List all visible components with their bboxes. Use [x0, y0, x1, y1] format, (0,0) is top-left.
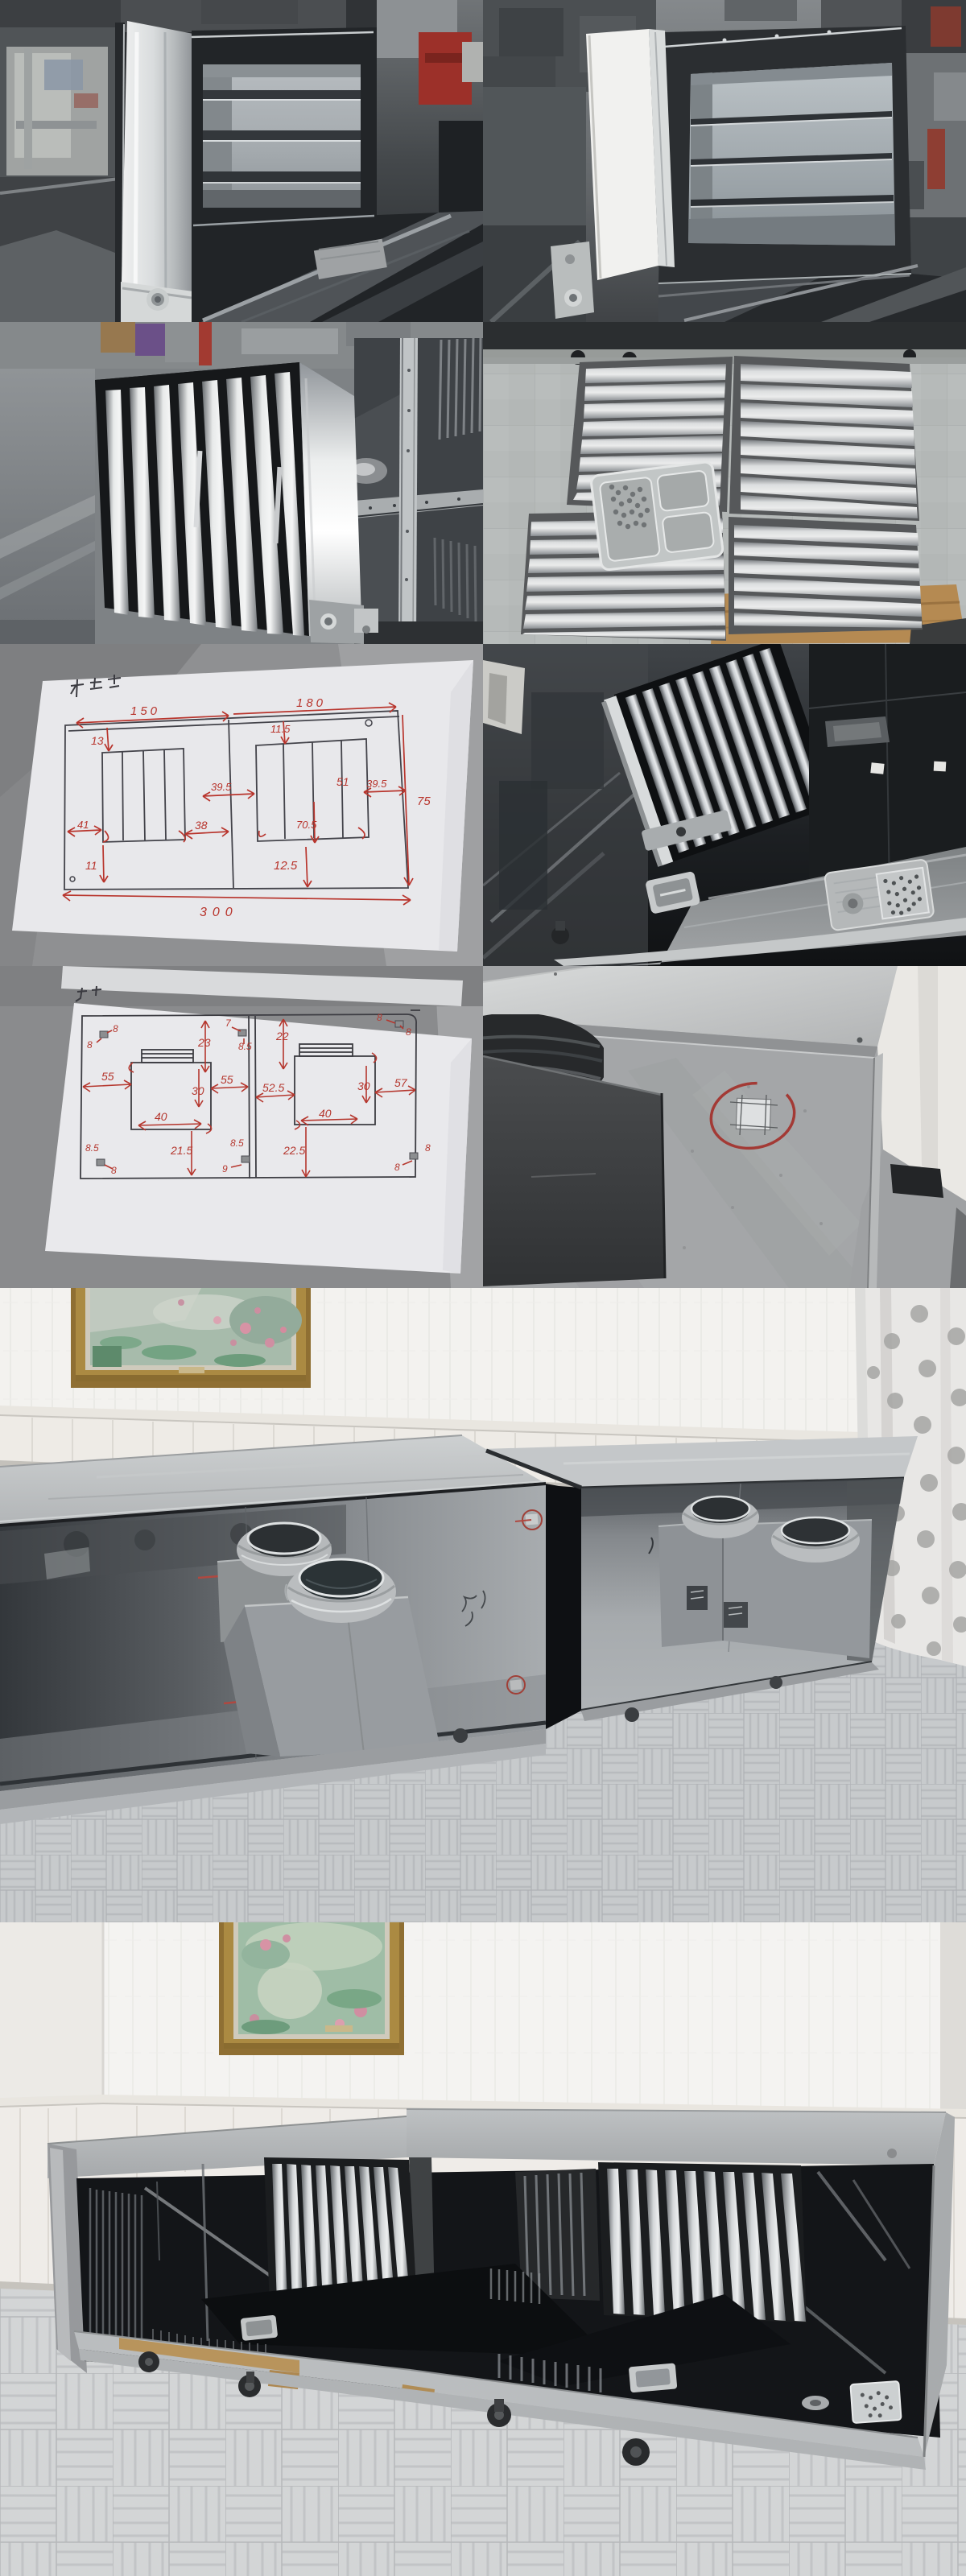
svg-text:9: 9 — [222, 1163, 228, 1174]
svg-text:8: 8 — [406, 1026, 411, 1038]
svg-text:8: 8 — [425, 1142, 431, 1154]
svg-text:180: 180 — [296, 696, 326, 710]
svg-text:11.5: 11.5 — [270, 723, 291, 735]
svg-text:30: 30 — [192, 1084, 204, 1097]
svg-text:13: 13 — [91, 734, 104, 747]
svg-text:8: 8 — [377, 1012, 382, 1023]
svg-text:55: 55 — [221, 1073, 233, 1086]
svg-text:39.5: 39.5 — [211, 781, 232, 793]
svg-text:150: 150 — [130, 704, 160, 718]
svg-text:55: 55 — [101, 1070, 114, 1083]
svg-text:40: 40 — [155, 1110, 167, 1123]
svg-text:300: 300 — [200, 906, 238, 919]
svg-text:23: 23 — [197, 1036, 211, 1049]
svg-text:8: 8 — [394, 1162, 400, 1173]
svg-text:8: 8 — [113, 1023, 118, 1034]
svg-text:39.5: 39.5 — [366, 778, 387, 790]
svg-text:8.5: 8.5 — [85, 1142, 99, 1154]
svg-text:70.5: 70.5 — [296, 819, 317, 831]
svg-text:30: 30 — [357, 1080, 370, 1092]
svg-text:51: 51 — [336, 775, 349, 788]
svg-text:11: 11 — [85, 859, 97, 872]
svg-text:40: 40 — [319, 1107, 332, 1120]
svg-text:75: 75 — [417, 795, 431, 808]
svg-text:38: 38 — [195, 819, 208, 832]
svg-text:8.5: 8.5 — [238, 1041, 252, 1052]
svg-text:22.5: 22.5 — [283, 1144, 305, 1157]
svg-text:8.5: 8.5 — [230, 1137, 244, 1149]
svg-text:8: 8 — [111, 1165, 117, 1176]
svg-text:41: 41 — [77, 819, 89, 831]
svg-text:52.5: 52.5 — [262, 1081, 284, 1094]
svg-text:12.5: 12.5 — [274, 859, 298, 873]
svg-text:22: 22 — [275, 1030, 289, 1042]
svg-text:21.5: 21.5 — [170, 1144, 192, 1157]
svg-text:57: 57 — [394, 1076, 408, 1089]
svg-text:8: 8 — [87, 1039, 93, 1051]
